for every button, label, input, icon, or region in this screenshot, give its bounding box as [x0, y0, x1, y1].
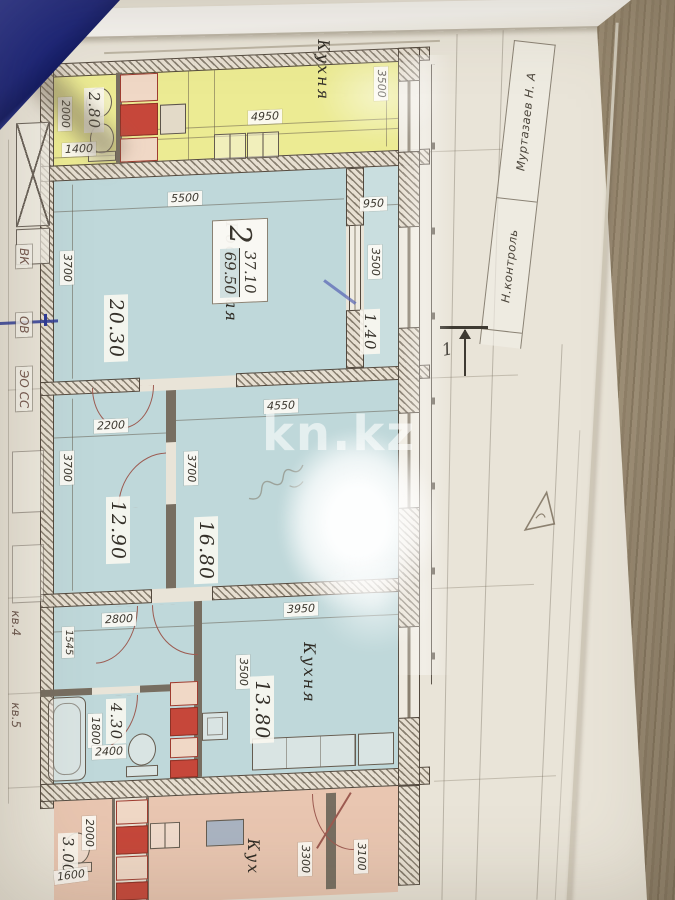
window: [398, 81, 420, 152]
shaft-box: [12, 544, 44, 603]
service-shaft-red: [170, 759, 198, 778]
dim-label: 3100: [354, 839, 368, 874]
wall-pier: [398, 785, 420, 886]
floor-plan-photo: Муртазаев Н. А Н.контроль 1: [0, 0, 675, 900]
title-block-cell: Н.контроль: [482, 198, 537, 334]
shaft-label-vk: ВК: [16, 245, 32, 268]
stove-icon: [214, 133, 246, 160]
service-shaft: [116, 799, 148, 824]
margin-line: [8, 692, 42, 695]
wall-pier: [398, 327, 420, 414]
title-block-cell: Муртазаев Н. А: [497, 41, 555, 203]
stamp-rooms: 2: [223, 224, 258, 245]
stamp-total-area: 69.50: [221, 248, 240, 298]
stove-box: [160, 104, 186, 135]
area-label-bathroom: 4.30: [106, 698, 126, 744]
balcony-rail: [431, 64, 435, 684]
margin-line: [8, 786, 42, 789]
dim-label: 3500: [236, 655, 250, 690]
stove-icon: [206, 819, 244, 847]
watermark: kn.kz: [262, 406, 416, 462]
dim-label: 3950: [284, 602, 318, 618]
area-label-balcony: 1.40: [360, 309, 380, 355]
pencil-triangle-doodle: [521, 486, 563, 537]
flat-label-kv4: кв.4: [8, 607, 24, 640]
dim-label: 3700: [60, 451, 74, 486]
dim-label: 1800: [88, 713, 102, 748]
counter-icon: [247, 131, 279, 158]
shaft-label-ov: ОВ: [16, 313, 32, 337]
window: [398, 227, 420, 328]
service-shaft: [120, 137, 158, 163]
fridge-icon: [358, 732, 394, 766]
cabinet-line: [188, 71, 189, 159]
dim-label: 950: [360, 196, 387, 211]
wall-pier: [398, 507, 420, 628]
service-shaft-red: [120, 103, 158, 137]
pen-mark: [44, 314, 47, 326]
room-name-kitchen: Кухня: [300, 642, 319, 705]
sink-icon: [150, 822, 180, 849]
dim-label: 3500: [368, 245, 382, 280]
bathtub-inner: [53, 702, 81, 775]
dim-label: 2000: [82, 816, 96, 851]
flat-label-kv5: кв.5: [8, 699, 24, 732]
window: [398, 627, 420, 718]
kitchen-sink-inner: [207, 717, 223, 736]
service-shaft-red: [170, 707, 198, 736]
service-shaft: [116, 855, 148, 880]
dim-label: 3300: [298, 842, 312, 877]
examiner-role: Н.контроль: [498, 228, 520, 303]
dim-label: 3500: [374, 66, 388, 101]
dim-label: 1545: [62, 627, 74, 659]
dim-label: 2200: [94, 418, 128, 434]
shaft-box: [12, 450, 44, 513]
area-label-bedroom: 12.90: [106, 496, 130, 564]
service-shaft-red: [116, 881, 148, 900]
stamp-areas: 37.10 69.50: [221, 247, 260, 298]
area-label-kitchen: 13.80: [250, 676, 274, 744]
area-label-bedroom2: 16.80: [194, 516, 218, 584]
toilet-tank-icon: [126, 765, 158, 777]
dim-line: [72, 399, 73, 591]
paper-outer-edge: [566, 23, 618, 900]
dim-label: 3700: [60, 251, 74, 286]
wall-pier: [398, 47, 420, 82]
title-block: Муртазаев Н. А Н.контроль: [479, 40, 555, 349]
area-label-living: 20.30: [104, 294, 128, 362]
stamp-living-area: 37.10: [240, 247, 260, 297]
shaft-x-box: [16, 122, 50, 228]
apartment-stamp: 2 37.10 69.50: [212, 218, 268, 305]
service-shaft: [170, 737, 198, 758]
service-shaft-red: [116, 825, 148, 854]
wall-pier: [398, 717, 420, 786]
shaft-label-eo: ЭО СС: [16, 367, 32, 412]
dim-label: 2400: [92, 744, 126, 760]
service-shaft: [170, 681, 198, 706]
dim-label: 5500: [168, 191, 202, 207]
service-shaft: [120, 73, 158, 103]
partition: [112, 799, 115, 900]
room-name-kitchen-top: Кухня: [314, 39, 333, 102]
room-name-lower-kitchen: Кух: [244, 838, 263, 876]
dim-label: 2800: [102, 612, 136, 628]
partition: [166, 504, 176, 588]
dim-label: 3700: [184, 451, 198, 486]
wall-pier: [398, 151, 420, 228]
dim-label: 4950: [248, 109, 282, 125]
partition: [166, 390, 176, 442]
examiner-name: Муртазаев Н. А: [513, 71, 538, 171]
